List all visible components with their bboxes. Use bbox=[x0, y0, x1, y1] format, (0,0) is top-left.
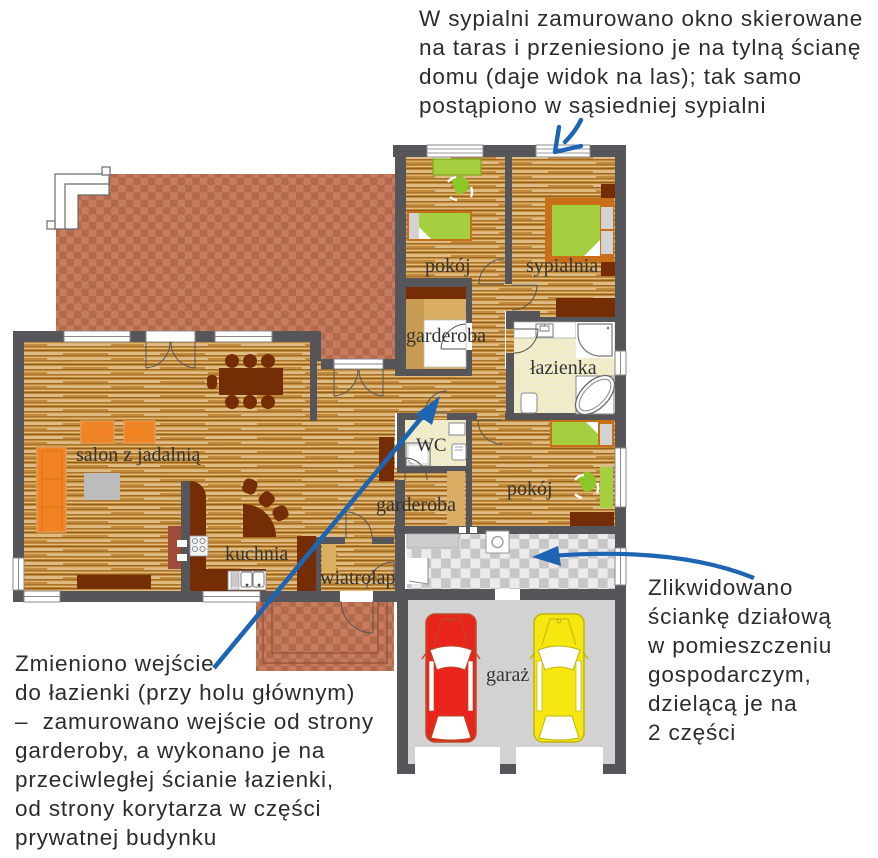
svg-text:salon z jadalnią: salon z jadalnią bbox=[76, 444, 202, 466]
svg-text:WC: WC bbox=[416, 435, 447, 456]
svg-text:garaż: garaż bbox=[486, 664, 529, 686]
svg-text:garderoba: garderoba bbox=[406, 325, 486, 347]
svg-text:garderoba: garderoba bbox=[376, 494, 456, 516]
svg-text:kuchnia: kuchnia bbox=[225, 543, 288, 565]
svg-text:pokój: pokój bbox=[425, 255, 471, 277]
svg-text:sypialnia: sypialnia bbox=[526, 255, 598, 277]
svg-text:pokój: pokój bbox=[507, 478, 553, 500]
svg-text:łazienka: łazienka bbox=[530, 357, 597, 379]
svg-text:wiatrołap: wiatrołap bbox=[320, 567, 396, 589]
